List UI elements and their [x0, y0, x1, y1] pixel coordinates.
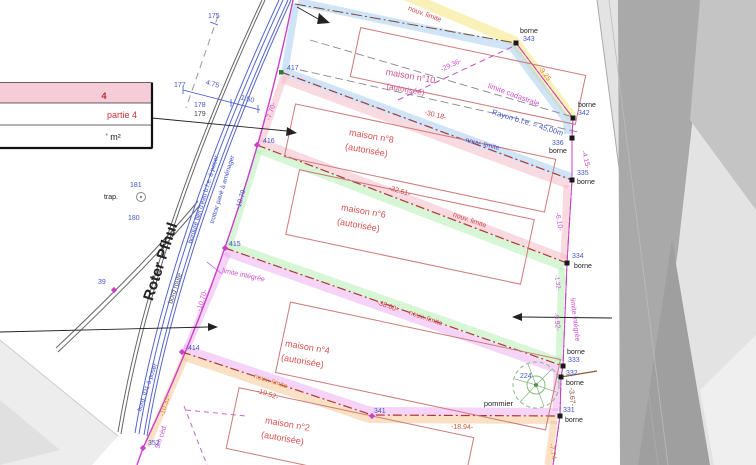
dim-1-50: 1.50 [240, 94, 255, 104]
maison-6-status: (autorisée) [336, 216, 380, 233]
dim-4-75: 4.75 [205, 79, 220, 89]
marker-borne-333 [561, 364, 566, 369]
marker-352 [140, 445, 146, 451]
legend-row1-bg [0, 83, 152, 103]
point-414: 414 [188, 345, 200, 352]
rayon-bfe-label: Rayon b.f.e. = 45,00m [491, 107, 564, 137]
borne-333-word: borne [567, 349, 585, 356]
limite-cadastrale-label: limite cadastrale [487, 81, 541, 108]
borne-335-num: 335 [577, 170, 589, 177]
dim-6-10: -6.10- [553, 212, 563, 232]
arrow-head-left [208, 323, 218, 331]
dim-18-94: -18.94- [451, 424, 474, 432]
dim-7-70: -7.70- [266, 101, 278, 121]
ceded-strip-dashed-2 [186, 410, 246, 416]
dim-4-15: -4.15- [580, 150, 591, 170]
parcel-bands [147, 0, 572, 465]
maison-4-status: (autorisée) [280, 352, 324, 369]
arrow-head-top [317, 13, 330, 24]
point-177: 177 [174, 82, 186, 89]
marker-borne-334 [565, 261, 570, 266]
ceded-strip-dashed-1 [184, 406, 207, 465]
legend-row1-text: 4 [101, 91, 106, 101]
pommier-label: pommier [484, 399, 514, 408]
borne-332-word: borne [566, 380, 584, 387]
borne-332-num: 332 [566, 370, 578, 377]
site-plan-screenshot: 4 partie 4 ' m² Roter Pfhul bord route b… [0, 0, 756, 465]
point-179: 179 [194, 111, 206, 118]
borne-336-word: borne [549, 148, 567, 155]
tick-175 [210, 22, 218, 25]
band-m8-east [564, 185, 567, 259]
house-m6 [286, 170, 534, 284]
point-178: 178 [194, 102, 206, 109]
arrow-head-right [512, 313, 522, 321]
point-417: 417 [287, 65, 299, 72]
arrow-head-legend [286, 127, 297, 136]
dim-29-36: -29.36- [440, 58, 464, 74]
arrow-line-left [0, 327, 208, 332]
marker-borne-343 [514, 41, 519, 46]
borne-335-word: borne [577, 179, 595, 186]
limite-integree-label-1: limite intégrée [221, 268, 265, 284]
marker-39 [111, 287, 117, 293]
legend-row3-text: ' m² [106, 132, 121, 142]
limite-integree-label-2: limite intégrée [568, 298, 580, 342]
tree-point-marker [534, 383, 538, 387]
borne-342-word: borne [578, 102, 596, 109]
borne-333-num: 333 [568, 357, 580, 364]
borne-331-num: 331 [563, 407, 575, 414]
borne-336-num: 336 [552, 140, 564, 147]
dim-10-31: -10.31- [159, 393, 172, 417]
borne-334-word: borne [574, 263, 592, 270]
site-plan-drawing: 4 partie 4 ' m² Roter Pfhul bord route b… [0, 0, 756, 465]
band-m6-south [226, 244, 561, 362]
house-m2 [226, 388, 474, 465]
borne-342-num: 342 [578, 110, 590, 117]
legend-row2-text: partie 4 [107, 110, 137, 120]
old-limit-dashed-175 [186, 16, 218, 108]
borne-331-word: borne [565, 417, 583, 424]
point-175: 175 [208, 13, 220, 20]
marker-borne-332 [559, 375, 564, 380]
marker-borne-336 [570, 136, 575, 141]
arrow-line-right [522, 317, 612, 318]
trap-label: trap. [104, 194, 118, 201]
maison-8-status: (autorisée) [344, 141, 388, 158]
marker-417 [279, 70, 284, 75]
trap-manhole-dot [140, 196, 142, 198]
borne-343-word: borne [520, 28, 538, 35]
point-180: 180 [128, 215, 140, 222]
point-341: 341 [374, 408, 386, 415]
borne-343-num: 343 [523, 36, 535, 43]
point-39: 39 [98, 279, 106, 286]
point-415: 415 [229, 241, 241, 248]
dim-30-18: -30.18- [424, 110, 448, 122]
marker-borne-331 [558, 414, 563, 419]
maison-2-status: (autorisée) [260, 429, 304, 446]
point-352: 352 [148, 440, 160, 447]
borne-334-num: 334 [572, 253, 584, 260]
dim-1-32: -1.32- [553, 275, 561, 291]
point-181: 181 [130, 182, 142, 189]
marker-borne-342 [571, 116, 576, 121]
maison-10-status: (autorisée) [386, 82, 426, 98]
marker-borne-335 [570, 178, 575, 183]
point-416: 416 [263, 138, 275, 145]
dim-3-67: -3.67- [567, 387, 576, 406]
dim-9-92: -9.92- [552, 312, 561, 332]
legend-box: 4 partie 4 ' m² [0, 83, 152, 148]
point-224: 224 [520, 373, 532, 380]
